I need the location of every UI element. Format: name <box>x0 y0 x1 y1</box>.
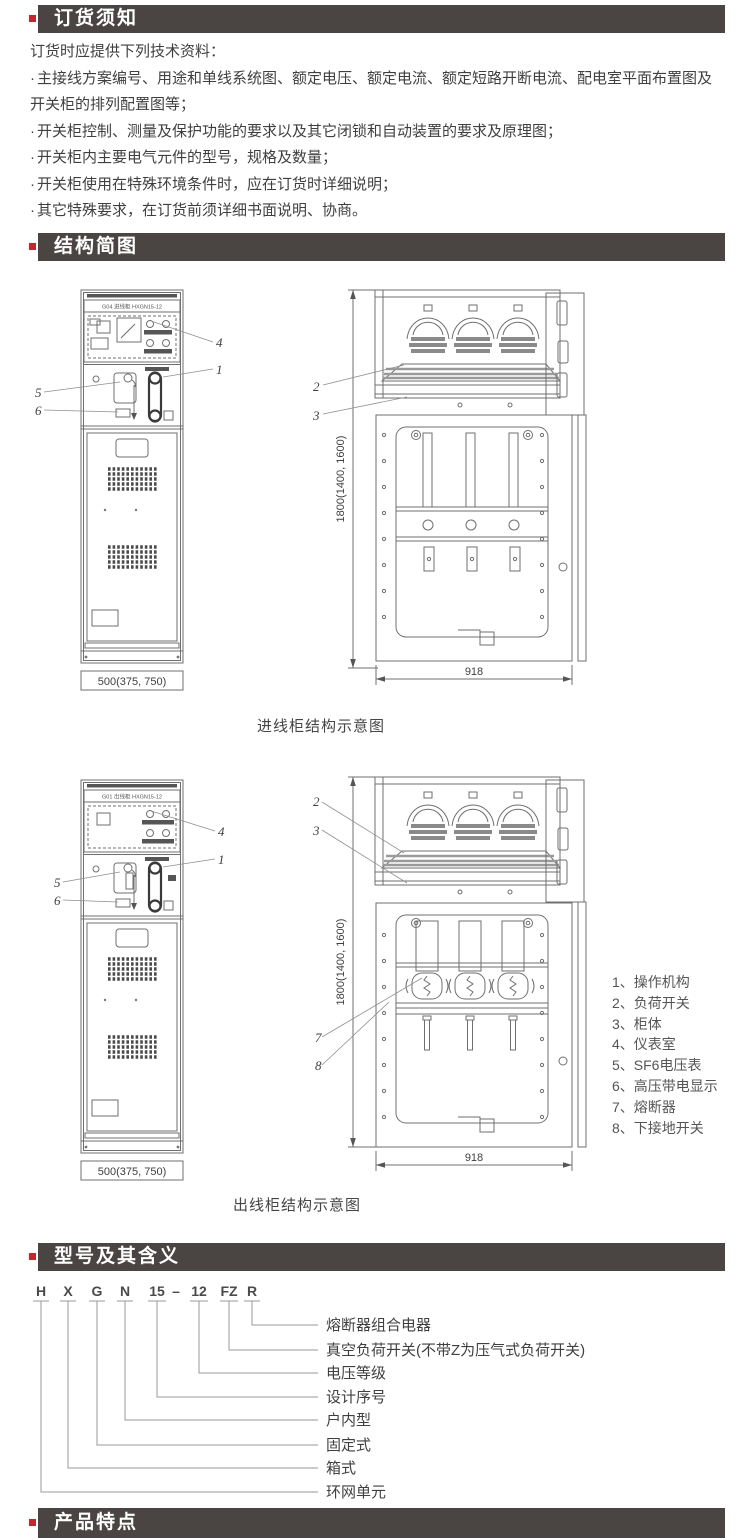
cabinet-door <box>87 923 177 1131</box>
fuse-phase-a <box>406 973 448 999</box>
ordering-bullet: ·其它特殊要求，在订货前须详细书面说明、协商。 <box>30 198 720 225</box>
parts-legend: 1、操作机构 2、负荷开关 3、柜体 4、仪表室 5、SF6电压表 6、高压带电… <box>612 972 750 1138</box>
callout-4: 4 <box>218 824 225 839</box>
callout-2: 2 <box>313 794 320 809</box>
busbar <box>382 851 560 868</box>
code-dash: – <box>172 1283 180 1299</box>
instrument-panel <box>84 312 180 362</box>
cabinet-panel-label: G01 出线柜 HXGN15-12 <box>102 793 162 801</box>
outgoing-front-view: G01 出线柜 HXGN15-12 <box>81 780 183 1180</box>
nameplate <box>92 1100 118 1116</box>
vent-grille-top <box>108 469 157 489</box>
code-X: X <box>63 1283 73 1299</box>
vent-grille-bottom <box>108 547 157 567</box>
meaning-G: 固定式 <box>326 1437 371 1454</box>
callout-6: 6 <box>54 893 61 908</box>
load-switch-compartment <box>375 290 560 407</box>
ordering-notes: 订货时应提供下列技术资料： ·主接线方案编号、用途和单线系统图、额定电压、额定电… <box>30 39 720 225</box>
meaning-N: 户内型 <box>326 1412 371 1429</box>
code-H: H <box>36 1283 46 1299</box>
legend-item: 3、柜体 <box>612 1014 750 1035</box>
legend-item: 1、操作机构 <box>612 972 750 993</box>
cabinet-panel-label: G04 进线柜 HXGN15-12 <box>102 303 162 311</box>
height-dimension: 1800(1400, 1600) <box>335 919 347 1006</box>
meaning-15: 设计序号 <box>326 1389 386 1406</box>
section-header-features: 产品特点 <box>38 1508 725 1538</box>
width-dimension: 500(375, 750) <box>98 1166 167 1178</box>
load-switch-compartment <box>375 777 560 894</box>
ordering-intro: 订货时应提供下列技术资料： <box>30 39 720 66</box>
callout-5: 5 <box>35 385 42 400</box>
insulator-phase-c <box>497 792 539 840</box>
callout-2: 2 <box>313 379 320 394</box>
height-dimension: 1800(1400, 1600) <box>335 436 347 523</box>
red-bullet-icon <box>29 15 36 22</box>
insulator-phase-b <box>452 792 494 840</box>
incoming-cabinet-figure: G04 进线柜 HXGN15-12 <box>30 285 600 700</box>
code-N: N <box>120 1283 130 1299</box>
nameplate <box>92 610 118 626</box>
fuse-phase-c <box>492 973 534 999</box>
meaning-X: 箱式 <box>326 1460 356 1477</box>
vent-grille-top <box>108 959 157 979</box>
code-FZ: FZ <box>220 1283 238 1299</box>
callout-1: 1 <box>216 362 223 377</box>
operation-panel <box>93 367 173 422</box>
section-header-ordering: 订货须知 <box>38 5 725 33</box>
section-header-structure: 结构简图 <box>38 233 725 261</box>
insulator-phase-c <box>497 305 539 353</box>
cabinet-door <box>87 433 177 641</box>
callout-5: 5 <box>54 875 61 890</box>
outgoing-cabinet-figure: G01 出线柜 HXGN15-12 <box>30 775 600 1195</box>
callout-4: 4 <box>216 335 223 350</box>
callout-1: 1 <box>218 852 225 867</box>
insulator-phase-a <box>407 305 449 353</box>
width-dimension: 500(375, 750) <box>98 676 167 688</box>
meaning-FZ: 真空负荷开关(不带Z为压气式负荷开关) <box>326 1341 585 1359</box>
legend-item: 5、SF6电压表 <box>612 1055 750 1076</box>
depth-dimension: 918 <box>465 666 483 678</box>
code-15: 15 <box>149 1283 165 1299</box>
catalog-page: 订货须知 订货时应提供下列技术资料： ·主接线方案编号、用途和单线系统图、额定电… <box>0 0 750 1538</box>
red-bullet-icon <box>29 1519 36 1526</box>
code-12: 12 <box>191 1283 207 1299</box>
meaning-H: 环网单元 <box>326 1484 386 1501</box>
operating-handle <box>149 373 161 422</box>
code-G: G <box>92 1283 103 1299</box>
section-title-features: 产品特点 <box>54 1512 138 1533</box>
code-R: R <box>247 1283 257 1299</box>
outgoing-figure-caption: 出线柜结构示意图 <box>233 1194 361 1215</box>
vent-grille-bottom <box>108 1037 157 1057</box>
incoming-front-view: G04 进线柜 HXGN15-12 <box>81 290 183 690</box>
operating-handle <box>149 863 161 912</box>
earthing-rods <box>423 1016 517 1050</box>
callout-3: 3 <box>312 823 320 838</box>
ordering-bullet: ·开关柜使用在特殊环境条件时，应在订货时详细说明； <box>30 172 720 199</box>
callout-3: 3 <box>312 408 320 423</box>
section-title-model: 型号及其含义 <box>54 1246 180 1267</box>
red-bullet-icon <box>29 243 36 250</box>
fuse-phase-b <box>449 973 491 999</box>
legend-item: 8、下接地开关 <box>612 1118 750 1139</box>
section-header-model: 型号及其含义 <box>38 1243 725 1271</box>
red-bullet-icon <box>29 1253 36 1260</box>
legend-item: 2、负荷开关 <box>612 993 750 1014</box>
cabinet-frame <box>376 903 572 1147</box>
callout-6: 6 <box>35 403 42 418</box>
ordering-bullet: ·开关柜内主要电气元件的型号，规格及数量； <box>30 145 720 172</box>
section-title-ordering: 订货须知 <box>54 8 138 29</box>
ordering-bullet: ·开关柜控制、测量及保护功能的要求以及其它闭锁和自动装置的要求及原理图； <box>30 119 720 146</box>
legend-item: 7、熔断器 <box>612 1097 750 1118</box>
depth-dimension: 918 <box>465 1152 483 1164</box>
callout-8: 8 <box>315 1058 322 1073</box>
outgoing-callouts: 2 3 7 8 4 1 5 6 <box>54 794 422 1073</box>
callout-7: 7 <box>315 1030 322 1045</box>
operation-panel <box>93 857 176 912</box>
model-code-tree: H X G N 15 – 12 FZ R 熔断器组合电器 真空负荷开关(不带Z为… <box>30 1280 720 1508</box>
incoming-side-view: 1800(1400, 1600) <box>335 290 586 685</box>
mechanism-side-panel <box>546 293 586 661</box>
legend-item: 4、仪表室 <box>612 1034 750 1055</box>
incoming-callouts: 4 1 5 6 2 3 <box>35 321 407 423</box>
outgoing-side-view: 1800(1400, 1600) <box>335 777 586 1171</box>
legend-item: 6、高压带电显示 <box>612 1076 750 1097</box>
busbar <box>382 364 560 381</box>
meaning-R: 熔断器组合电器 <box>326 1317 431 1334</box>
meaning-12: 电压等级 <box>326 1364 386 1382</box>
mechanism-side-panel <box>546 780 586 1147</box>
incoming-figure-caption: 进线柜结构示意图 <box>257 715 385 736</box>
section-title-structure: 结构简图 <box>54 236 138 257</box>
cabinet-frame <box>376 415 572 661</box>
ordering-bullet: ·主接线方案编号、用途和单线系统图、额定电压、额定电流、额定短路开断电流、配电室… <box>30 66 720 119</box>
insulator-phase-a <box>407 792 449 840</box>
instrument-panel <box>84 802 180 852</box>
insulator-phase-b <box>452 305 494 353</box>
